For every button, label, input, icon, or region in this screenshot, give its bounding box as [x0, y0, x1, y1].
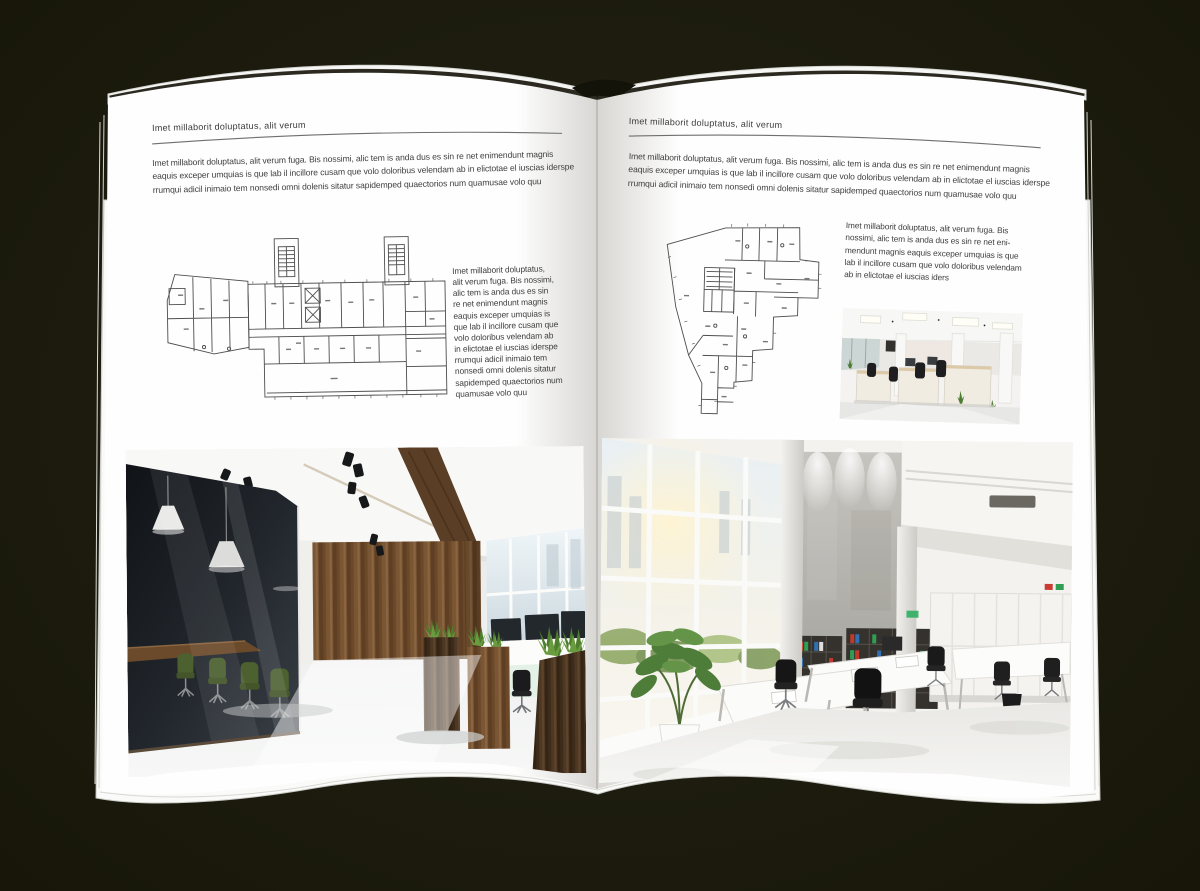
right-page-small-photo [840, 308, 1023, 425]
right-page-side-text: Imet millaborit doluptatus, alit verum f… [844, 219, 1042, 287]
right-page-photo [599, 438, 1073, 787]
plan-annotation-marks [682, 239, 811, 399]
left-page-side-text: Imet millaborit doluptatus, alit verum f… [452, 263, 580, 400]
left-floor-plan [152, 226, 453, 419]
left-page-photo [126, 446, 587, 777]
right-floor-plan [643, 214, 832, 424]
magazine-spread-mockup: Imet millaborit doluptatus, alit verum I… [0, 0, 1200, 891]
